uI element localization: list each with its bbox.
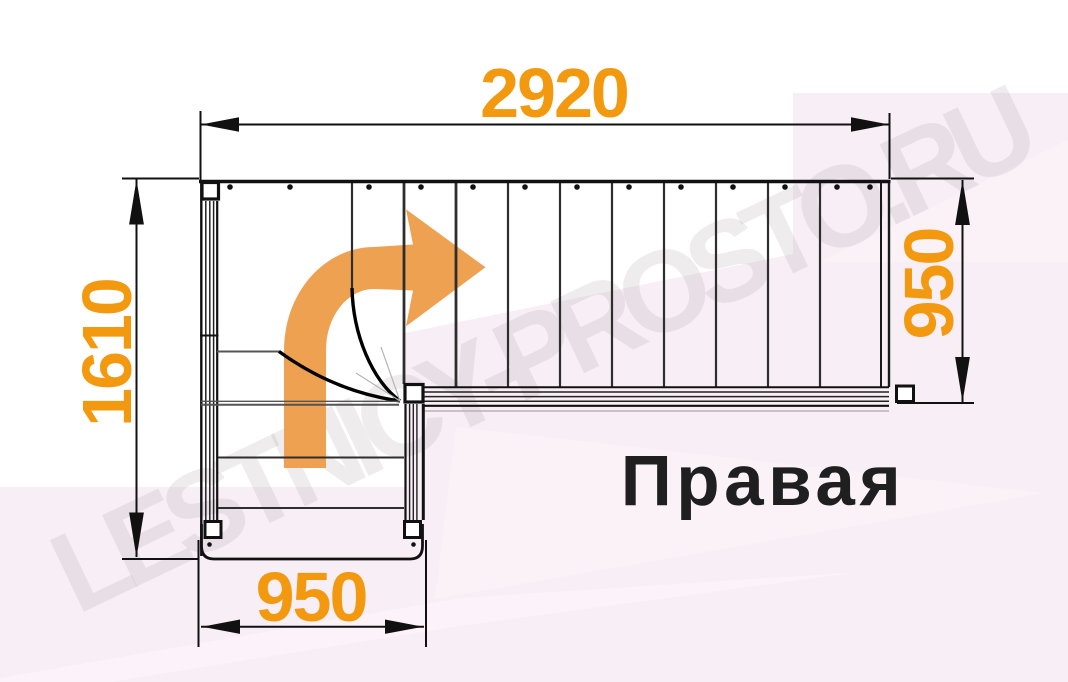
svg-text:950: 950 — [256, 558, 367, 636]
svg-text:Правая: Правая — [621, 442, 906, 521]
svg-text:1610: 1610 — [68, 279, 146, 427]
svg-text:950: 950 — [890, 229, 968, 340]
svg-text:2920: 2920 — [480, 54, 628, 132]
